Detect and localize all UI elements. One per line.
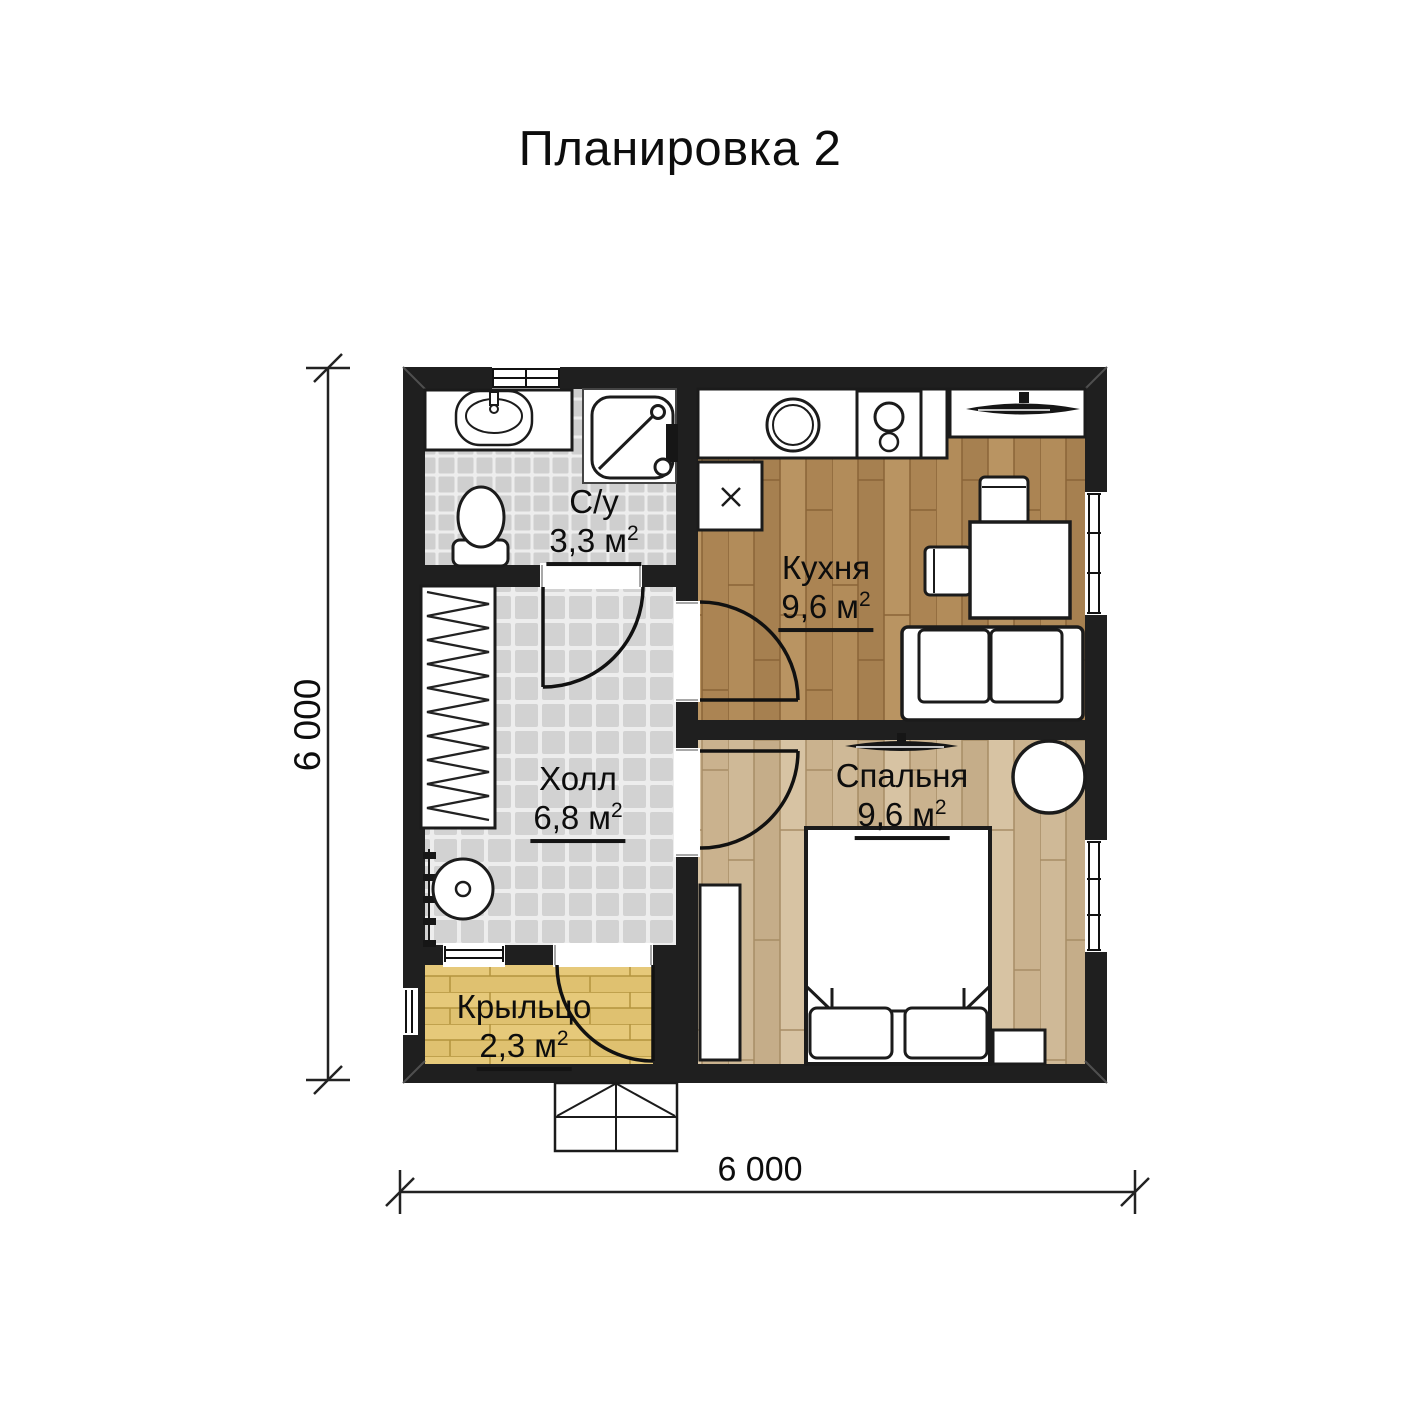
kitchen-window <box>1085 492 1107 615</box>
kitchen-door-opening <box>674 601 700 702</box>
room-area: 9,6м2 <box>854 797 949 840</box>
bathroom-door-opening <box>540 563 642 589</box>
floor-plan-page: Планировка 2 <box>0 0 1418 1418</box>
room-label-hall: Холл 6,8м2 <box>530 761 625 843</box>
room-name: Холл <box>530 761 625 798</box>
dining-chair-left-icon <box>925 547 971 595</box>
room-label-porch: Крыльцо 2,3м2 <box>457 989 592 1071</box>
bathroom-sink-icon <box>425 390 572 450</box>
dining-table-icon <box>970 522 1070 618</box>
toilet-icon <box>453 487 508 566</box>
porch-left-window <box>403 988 418 1035</box>
hall-porch-window <box>443 943 505 967</box>
sofa-icon <box>902 627 1083 720</box>
room-label-kitchen: Кухня 9,6м2 <box>778 550 873 632</box>
dining-chair-top-icon <box>980 477 1028 525</box>
floor-plan-drawing <box>0 0 1418 1418</box>
room-label-bathroom: С/у 3,3м2 <box>546 484 641 566</box>
hall-furniture <box>421 586 495 947</box>
room-area: 3,3м2 <box>546 523 641 566</box>
appliance-icon <box>698 462 762 530</box>
room-area: 9,6м2 <box>778 589 873 632</box>
bedroom-door-opening <box>674 748 700 857</box>
entrance-steps-icon <box>555 1083 677 1151</box>
room-name: С/у <box>546 484 641 521</box>
wall-porch-right <box>653 945 698 1083</box>
kitchen-tv-stand-icon <box>950 389 1085 437</box>
nightstand-icon <box>993 1030 1045 1064</box>
room-area: 2,3м2 <box>476 1028 571 1071</box>
room-name: Крыльцо <box>457 989 592 1026</box>
wall-kitchen-bedroom <box>698 720 1085 740</box>
shower-icon <box>583 389 678 483</box>
stool-icon <box>433 859 493 919</box>
room-label-bedroom: Спальня 9,6м2 <box>836 758 969 840</box>
pillow-icon <box>905 1008 987 1058</box>
hall-wardrobe-icon <box>421 586 495 828</box>
room-name: Кухня <box>778 550 873 587</box>
cooktop-icon <box>857 391 921 458</box>
height-dimension-label: 6 000 <box>287 679 329 772</box>
room-name: Спальня <box>836 758 969 795</box>
width-dimension-label: 6 000 <box>717 1151 802 1190</box>
pouf-icon <box>1013 741 1085 813</box>
double-bed-icon <box>806 828 990 1064</box>
bedroom-window <box>1085 840 1107 952</box>
wall-right <box>1085 367 1107 1083</box>
bedroom-wardrobe-icon <box>700 885 740 1060</box>
room-area: 6,8м2 <box>530 800 625 843</box>
bathroom-window <box>492 367 560 389</box>
entrance-door-opening <box>553 943 653 967</box>
pillow-icon <box>810 1008 892 1058</box>
